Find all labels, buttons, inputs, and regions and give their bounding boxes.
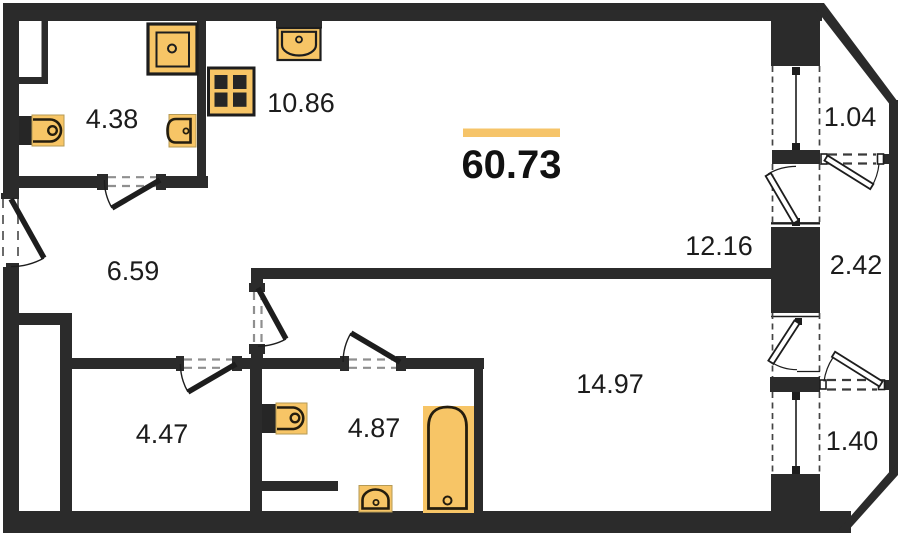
svg-text:1.40: 1.40 xyxy=(826,426,879,456)
svg-text:4.87: 4.87 xyxy=(348,413,401,443)
svg-text:2.42: 2.42 xyxy=(830,250,883,280)
svg-text:1.04: 1.04 xyxy=(824,102,877,132)
svg-text:60.73: 60.73 xyxy=(461,143,561,187)
svg-text:6.59: 6.59 xyxy=(107,256,160,286)
svg-text:4.38: 4.38 xyxy=(86,104,139,134)
svg-text:10.86: 10.86 xyxy=(267,88,335,118)
svg-text:14.97: 14.97 xyxy=(576,369,644,399)
svg-text:12.16: 12.16 xyxy=(685,231,753,261)
svg-text:4.47: 4.47 xyxy=(136,419,189,449)
